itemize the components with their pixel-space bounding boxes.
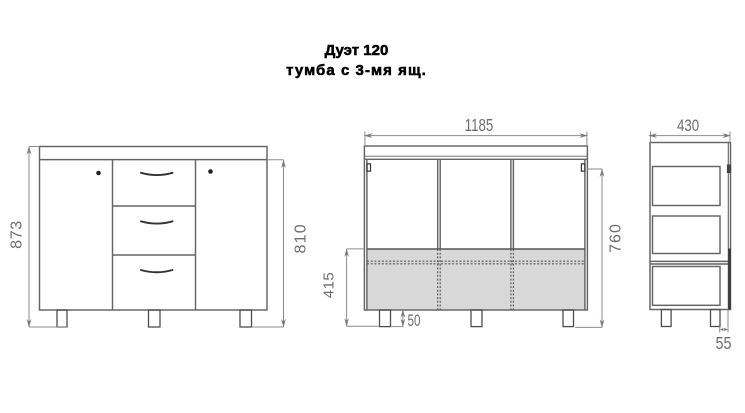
svg-text:430: 430 bbox=[677, 116, 699, 135]
svg-text:55: 55 bbox=[716, 335, 732, 354]
svg-text:810: 810 bbox=[293, 223, 310, 253]
svg-text:873: 873 bbox=[9, 220, 26, 249]
svg-text:1185: 1185 bbox=[465, 116, 494, 135]
svg-text:50: 50 bbox=[407, 312, 420, 330]
svg-text:415: 415 bbox=[321, 272, 338, 299]
svg-text:760: 760 bbox=[608, 223, 625, 253]
